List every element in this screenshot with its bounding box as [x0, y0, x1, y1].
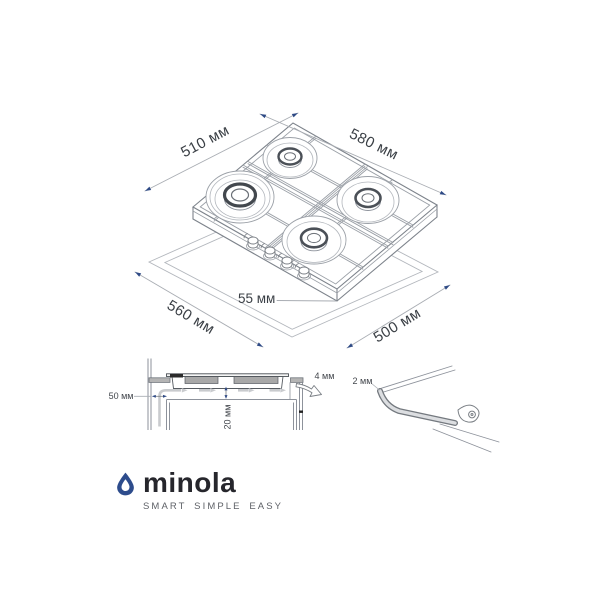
brand-name: minola	[143, 469, 283, 497]
logo-text-block: minola SMART SIMPLE EASY	[143, 469, 283, 512]
control-block	[170, 374, 183, 378]
dimension-line-560	[135, 272, 263, 347]
burner-back	[263, 138, 317, 179]
dimension-label-2: 2 мм	[353, 376, 373, 386]
dimension-label-560: 560 мм	[164, 297, 218, 338]
countertop-left	[149, 378, 170, 383]
diagram-canvas: 510 мм 580 мм 560 мм 500 мм 55 мм	[0, 0, 600, 600]
burner-box-right	[234, 377, 278, 384]
burner-right	[337, 177, 399, 224]
seal-detail-view	[371, 366, 499, 452]
leader-line-55	[277, 301, 336, 302]
hob-glass-section	[167, 374, 289, 377]
burner-box-left	[185, 377, 218, 384]
airflow-arrows	[160, 390, 281, 426]
dimension-label-4: 4 мм	[315, 371, 335, 381]
fixing-tick	[299, 411, 303, 413]
brand-tagline: SMART SIMPLE EASY	[143, 501, 283, 512]
burner-left-wok	[206, 171, 274, 223]
countertop-right	[291, 378, 304, 383]
minola-logo: minola SMART SIMPLE EASY	[116, 469, 283, 512]
dimension-label-510: 510 мм	[178, 122, 232, 162]
minola-drop-icon	[116, 472, 135, 496]
dimension-label-20: 20 мм	[223, 405, 233, 430]
dimension-label-50: 50 мм	[109, 391, 134, 401]
burner-front	[282, 216, 346, 264]
product-dimension-diagram: 510 мм 580 мм 560 мм 500 мм 55 мм	[0, 0, 600, 600]
dimension-label-500: 500 мм	[371, 305, 424, 347]
dimension-label-55: 55 мм	[238, 291, 275, 306]
glass-edge-lines	[379, 366, 455, 393]
clamp	[458, 405, 479, 422]
counter-edge-lines	[433, 424, 499, 452]
wall-lines	[148, 359, 151, 431]
